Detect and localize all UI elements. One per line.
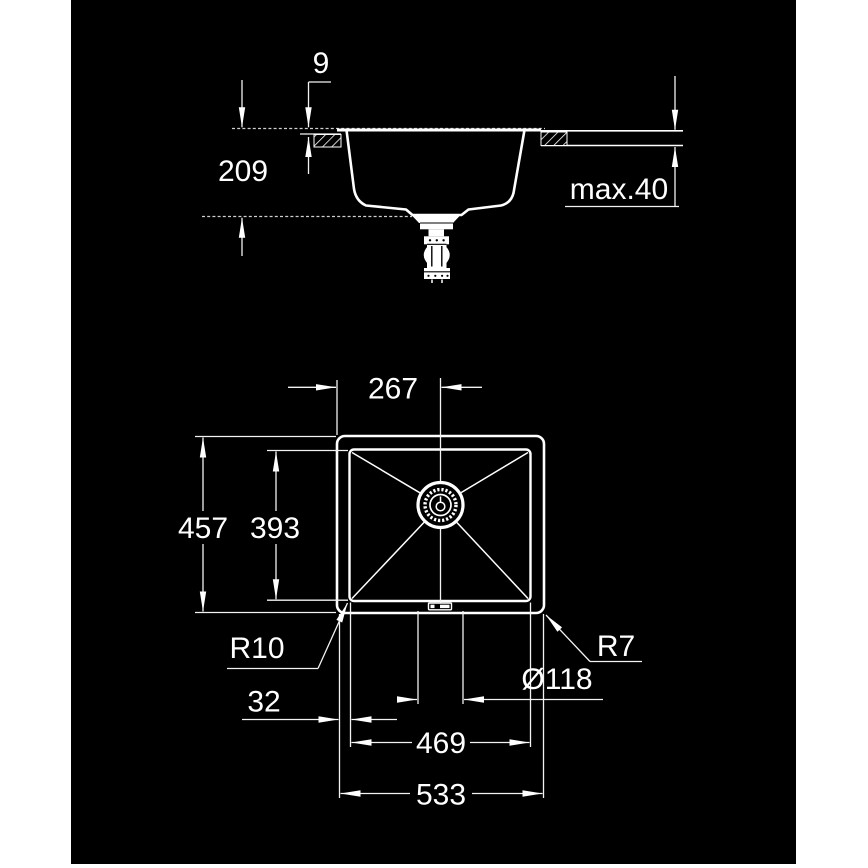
countertop-hatch-left [314, 135, 341, 148]
dim-label-outer-depth: 457 [178, 512, 228, 545]
technical-drawing-page: 9 209 max.40 [0, 0, 868, 868]
dim-label-outer-width: 533 [416, 779, 466, 812]
dim-label-bowl-width: 469 [416, 727, 466, 760]
countertop-hatch-right [541, 132, 567, 146]
dim-label-bowl-depth: 209 [218, 155, 268, 188]
strainer-flange [411, 215, 461, 224]
dim-label-counter-thickness: max.40 [570, 173, 668, 206]
dim-label-r10: R10 [229, 632, 284, 665]
bowl-cross-section [347, 130, 525, 215]
tailpipe [427, 244, 447, 268]
dim-label-r7: R7 [597, 630, 635, 663]
dim-label-bowl-depth-plan: 393 [250, 512, 300, 545]
dim-label-drain-diameter: Ø118 [521, 663, 592, 696]
dim-label-rim-height: 9 [313, 47, 330, 80]
tailpipe-flange [424, 268, 450, 279]
dim-label-rim-offset: 32 [247, 686, 280, 719]
overflow-slot [429, 603, 452, 610]
dim-label-drain-from-left: 267 [368, 373, 418, 406]
sink-technical-drawing: 9 209 max.40 [0, 0, 868, 868]
drain-neck [429, 229, 445, 236]
